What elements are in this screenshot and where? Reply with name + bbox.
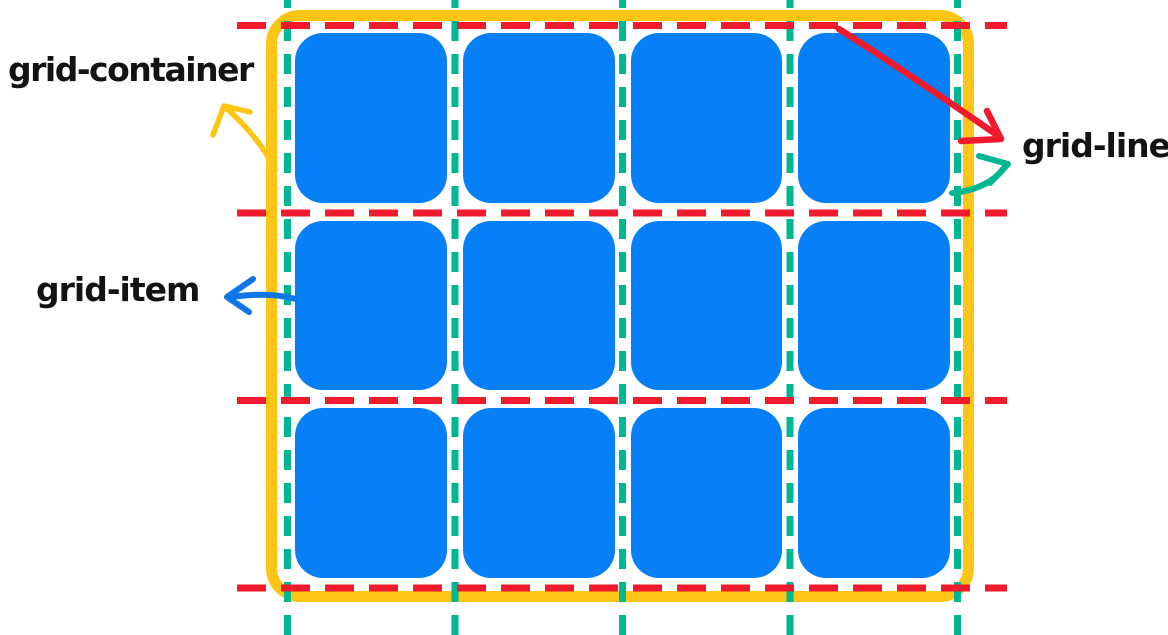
grid-line-label: grid-line <box>1022 128 1168 164</box>
grid-item-label: grid-item <box>36 272 199 308</box>
grid-terminology-diagram: grid-container grid-item grid-line <box>0 0 1168 635</box>
grid-container-label: grid-container <box>8 52 253 88</box>
grid-container-outline <box>266 10 974 602</box>
